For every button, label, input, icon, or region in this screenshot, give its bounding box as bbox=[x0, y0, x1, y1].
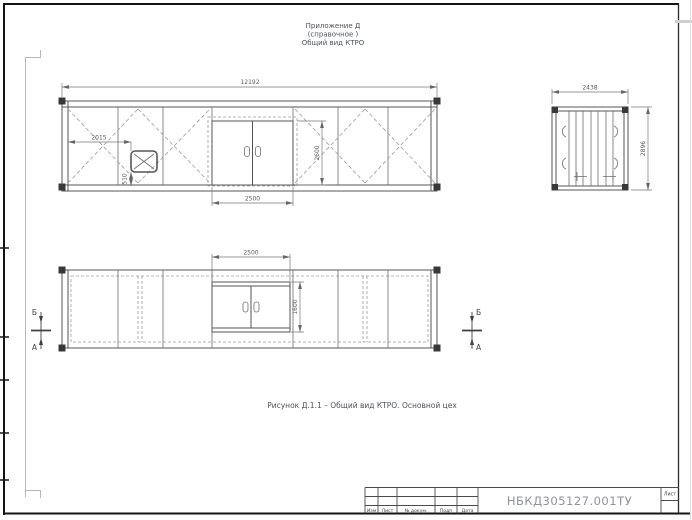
header-line-2: (справочное ) bbox=[308, 31, 359, 39]
sheet-cell-label: Лист bbox=[664, 492, 676, 498]
end-wall-posts bbox=[569, 111, 613, 186]
dim-text-plan-door-width: 2500 bbox=[243, 250, 258, 257]
drawing-canvas: Приложение Д (справочное ) Общий вид КТР… bbox=[0, 0, 692, 520]
plan-view: 2500 1600 bbox=[59, 250, 441, 352]
dim-text-vent-height: 510 bbox=[122, 173, 129, 185]
dim-text-vent-offset: 2015 bbox=[91, 135, 106, 142]
corner-fitting bbox=[552, 107, 559, 114]
figure-caption: Рисунок Д.1.1 – Общий вид КТРО. Основной… bbox=[267, 401, 457, 410]
side-view: 12192 2015 510 2600 2500 bbox=[59, 79, 441, 206]
section-label-top: Б bbox=[476, 308, 481, 317]
page-frame bbox=[0, 0, 692, 520]
corner-mark-bottom bbox=[25, 491, 41, 499]
end-view: 2438 2896 bbox=[552, 85, 653, 191]
corner-fitting bbox=[59, 345, 66, 352]
title-col-data: Дата bbox=[462, 508, 474, 514]
dim-text-door-height: 2600 bbox=[314, 145, 321, 160]
section-arrow-down-icon bbox=[39, 316, 43, 323]
title-block: Изм Лист № докум. Подп Дата НБКД305127.0… bbox=[365, 488, 679, 515]
section-label-bottom: А bbox=[32, 343, 38, 352]
section-label-top: Б bbox=[32, 308, 37, 317]
section-arrow-down-icon bbox=[470, 316, 474, 323]
dim-ext-plan-door-width bbox=[212, 254, 290, 281]
corner-fitting bbox=[59, 98, 66, 105]
drawing-sheet: Приложение Д (справочное ) Общий вид КТР… bbox=[0, 0, 692, 520]
title-col-ndokum: № докум. bbox=[405, 508, 428, 514]
vent-louver-cross bbox=[134, 154, 154, 169]
title-col-podp: Подп bbox=[440, 508, 452, 514]
section-marker-right: Б А bbox=[462, 308, 482, 352]
header-line-1: Приложение Д bbox=[306, 22, 361, 30]
dim-text-end-width: 2438 bbox=[582, 85, 597, 92]
corner-fitting bbox=[434, 345, 441, 352]
corner-fitting bbox=[434, 184, 441, 191]
door-handle-right bbox=[256, 147, 261, 157]
corner-fitting bbox=[622, 107, 629, 114]
header-line-3: Общий вид КТРО bbox=[302, 39, 365, 47]
corner-fitting bbox=[59, 267, 66, 274]
title-col-izm: Изм bbox=[367, 508, 377, 514]
section-marker-left: Б А bbox=[31, 308, 51, 352]
title-col-list: Лист bbox=[382, 508, 394, 514]
end-bracket-right bbox=[614, 126, 618, 169]
dim-text-plan-door-depth: 1600 bbox=[292, 299, 299, 314]
page-header: Приложение Д (справочное ) Общий вид КТР… bbox=[302, 22, 365, 47]
end-floor-marks bbox=[574, 172, 616, 181]
section-arrow-up-icon bbox=[470, 338, 474, 345]
section-arrow-up-icon bbox=[39, 338, 43, 345]
corner-fitting bbox=[59, 184, 66, 191]
corner-fitting bbox=[622, 184, 629, 191]
corner-fitting bbox=[434, 98, 441, 105]
end-outline bbox=[552, 107, 628, 190]
dim-text-end-height: 2896 bbox=[640, 141, 647, 156]
plan-door-handle-left bbox=[243, 302, 248, 312]
plan-door-handle-right bbox=[254, 302, 259, 312]
end-rails bbox=[552, 107, 628, 190]
corner-fitting bbox=[434, 267, 441, 274]
corner-fitting bbox=[552, 184, 559, 191]
end-bracket-left bbox=[562, 126, 566, 169]
dim-text-overall-length: 12192 bbox=[240, 79, 259, 86]
dim-text-door-width: 2500 bbox=[245, 196, 260, 203]
corner-mark-top bbox=[25, 50, 41, 58]
door-handle-left bbox=[245, 147, 250, 157]
plan-door-leafs bbox=[212, 286, 290, 328]
document-number: НБКД305127.001ТУ bbox=[507, 494, 632, 508]
section-label-bottom: А bbox=[476, 343, 482, 352]
